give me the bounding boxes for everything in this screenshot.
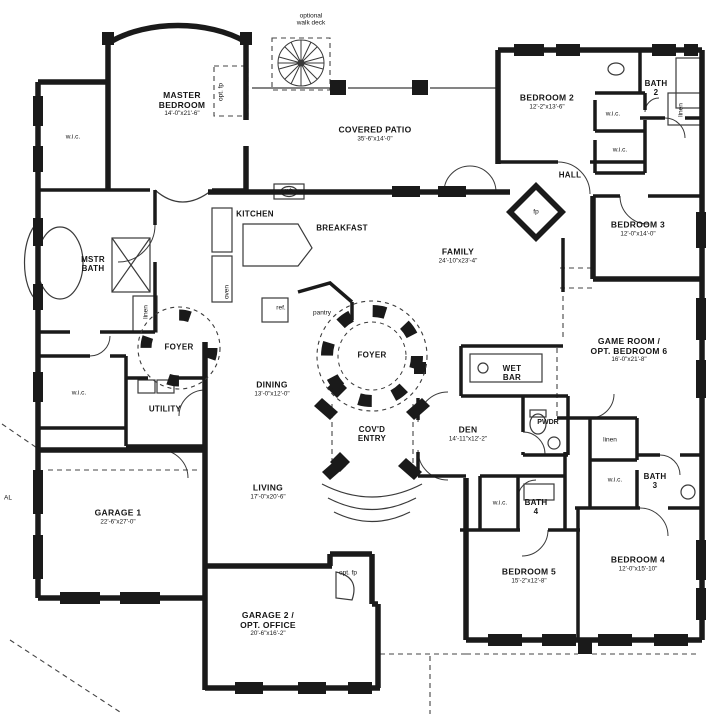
label-ref: ref. [276, 304, 285, 311]
label-wic-bed2-b: w.i.c. [613, 146, 627, 153]
label-wic-bed4: w.i.c. [608, 476, 622, 483]
label-wet-bar: WET BAR [503, 365, 522, 383]
label-breakfast: BREAKFAST [316, 225, 368, 234]
label-utility: UTILITY [149, 406, 181, 415]
label-game-room: GAME ROOM / OPT. BEDROOM 6 16'-0"x21'-8" [591, 337, 668, 363]
label-dining: DINING 13'-0"x12'-0" [254, 381, 289, 398]
label-foyer-west: FOYER [164, 344, 193, 353]
walk-deck-line2: walk deck [297, 20, 326, 27]
label-oven: oven [223, 285, 230, 299]
label-wic-bed5: w.i.c. [493, 499, 507, 506]
label-fp: fp [533, 208, 538, 215]
label-hall: HALL [559, 172, 582, 181]
label-covd-entry: COV'D ENTRY [358, 426, 386, 444]
label-bath-4: BATH 4 [525, 499, 548, 517]
label-wic-bed2-a: w.i.c. [606, 110, 620, 117]
label-bedroom-2: BEDROOM 2 12'-2"x13'-6" [520, 94, 574, 111]
label-family: FAMILY 24'-10"x23'-4" [439, 248, 478, 265]
label-edge-partial-text: AL [4, 494, 12, 501]
label-linen-bath2: linen [677, 103, 684, 117]
label-den: DEN 14'-11"x12'-2" [449, 426, 487, 443]
label-bath-2: BATH 2 [645, 80, 668, 98]
label-garage-1: GARAGE 1 22'-6"x27'-0" [95, 509, 142, 526]
label-bedroom-3: BEDROOM 3 12'-0"x14'-0" [611, 221, 665, 238]
label-wic-master: w.i.c. [66, 133, 80, 140]
label-covered-patio: COVERED PATIO 35'-6"x14'-0" [338, 126, 411, 143]
label-living: LIVING 17'-0"x20'-6" [250, 484, 285, 501]
walk-deck-label: optional walk deck [297, 13, 326, 28]
label-linen-mstr: linen [142, 305, 149, 319]
label-foyer-east: FOYER [357, 352, 386, 361]
label-garage-2: GARAGE 2 / OPT. OFFICE 20'-6"x16'-2" [240, 611, 296, 637]
label-wic-left: w.i.c. [72, 389, 86, 396]
label-wb: wb [285, 187, 293, 194]
label-pwdr: PWDR [537, 419, 558, 427]
walk-deck-line1: optional [297, 13, 326, 20]
spiral-stair-icon [278, 40, 324, 86]
label-bath-3: BATH 3 [644, 473, 667, 491]
label-opt-fp-garage2: opt. fp [339, 569, 357, 576]
label-opt-fp-master: opt. fp [217, 83, 224, 101]
label-master-bedroom: MASTER BEDROOM 14'-0"x21'-6" [159, 91, 206, 117]
label-mstr-bath: MSTR BATH [81, 256, 105, 274]
label-bedroom-4: BEDROOM 4 12'-0"x15'-10" [611, 556, 665, 573]
label-kitchen: KITCHEN [236, 211, 274, 220]
label-pantry: pantry [313, 309, 331, 316]
label-linen-bed4: linen [603, 436, 617, 443]
floor-plan: optional walk deck MASTER BEDROOM 14'-0"… [0, 0, 712, 716]
label-bedroom-5: BEDROOM 5 15'-2"x12'-8" [502, 568, 556, 585]
